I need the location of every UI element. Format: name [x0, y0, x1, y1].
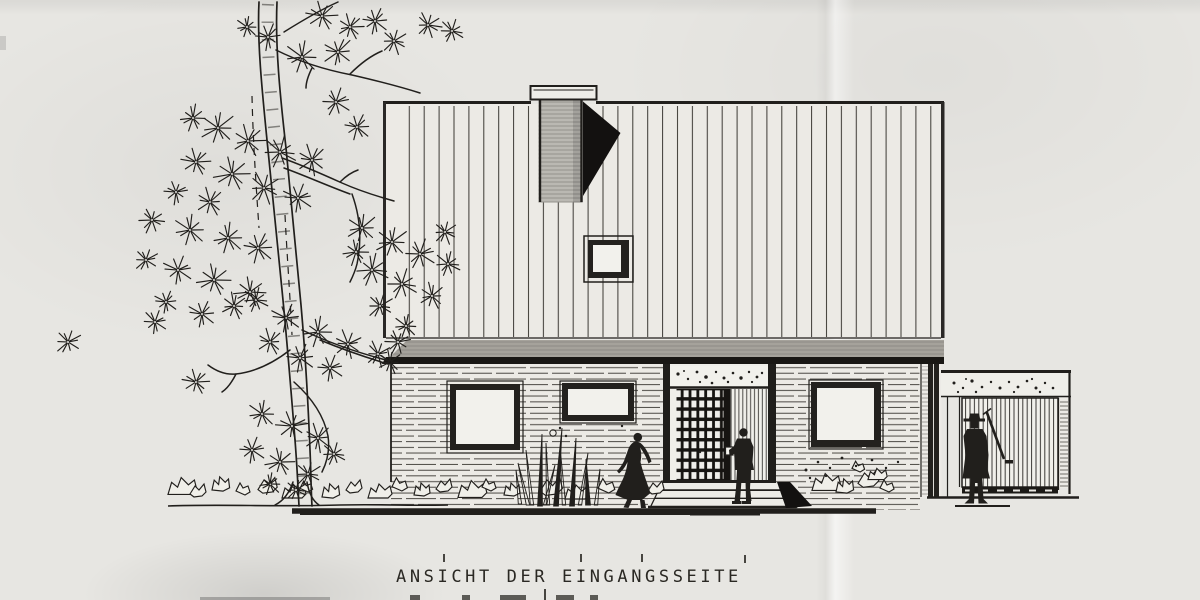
needle-cluster: [199, 187, 221, 215]
speckle-dot: [817, 461, 820, 464]
needle-cluster: [137, 250, 158, 269]
fascia-texture: [390, 340, 944, 357]
scanned-drawing-sheet: ANSICHT DER EINGANGSSEITE: [0, 0, 1200, 600]
house: [382, 86, 945, 510]
window-middle: [560, 381, 636, 423]
needle-cluster: [259, 328, 279, 354]
speckle-dot: [855, 465, 857, 467]
lettering-guide-tick: [641, 554, 643, 562]
needle-cluster: [287, 344, 313, 372]
speckle-dot: [1039, 391, 1041, 393]
speckle-dot: [696, 371, 699, 374]
needle-cluster: [265, 448, 295, 474]
caption-fragment: [556, 595, 574, 600]
needle-cluster: [343, 240, 369, 265]
speckle-dot: [805, 469, 808, 472]
elevation-drawing: [0, 0, 1200, 600]
garage-man-coat: [963, 429, 991, 479]
entry-divider: [724, 389, 731, 481]
needle-cluster: [182, 369, 210, 393]
speckle-dot: [699, 451, 701, 453]
window-right: [809, 380, 883, 449]
speckle-dot: [683, 370, 685, 372]
caption-fragment: [590, 595, 598, 600]
window-left-glass: [456, 390, 514, 444]
speckle-dot: [999, 387, 1002, 390]
speckle-dot: [1017, 386, 1020, 389]
speckle-dot: [621, 425, 623, 427]
lettering-guide-tick: [544, 589, 546, 600]
speckle-dot: [732, 372, 735, 375]
speckle-dot: [565, 435, 567, 437]
needle-cluster: [58, 331, 81, 352]
lettering-guide-tick: [580, 554, 582, 562]
caption-text: ANSICHT DER EINGANGSSEITE: [396, 567, 742, 587]
needle-cluster: [202, 113, 233, 142]
entry: [663, 364, 776, 483]
speckle-dot: [825, 475, 827, 477]
speckle-dot: [975, 391, 977, 393]
door-man-torso: [734, 439, 755, 471]
needle-cluster: [340, 14, 364, 39]
needle-cluster: [238, 17, 256, 37]
garage-right-pier-hatch: [1060, 399, 1068, 487]
garage-door-bottom-strip: [962, 487, 1058, 494]
woman-head: [634, 433, 643, 442]
roof-gable-siding: [383, 102, 945, 338]
needle-cluster: [363, 9, 387, 34]
speckle-dot: [715, 371, 717, 373]
scan-smudge: [0, 36, 6, 50]
speckle-dot: [1026, 380, 1029, 383]
needle-cluster: [298, 463, 320, 484]
entry-transom: [670, 366, 768, 386]
needle-cluster: [419, 13, 442, 38]
corner-hatch: [922, 366, 928, 496]
needle-cluster: [253, 172, 278, 204]
rock: [322, 484, 340, 498]
entry-right-jamb: [768, 364, 776, 483]
needle-cluster: [288, 41, 316, 72]
speckle-dot: [962, 387, 964, 389]
needle-cluster: [250, 401, 274, 427]
speckle-dot: [809, 477, 811, 479]
speckle-dot: [559, 427, 561, 429]
garage-door-handle: [1005, 460, 1013, 464]
needle-cluster: [155, 291, 176, 313]
needle-cluster: [164, 182, 187, 205]
needle-cluster: [348, 215, 374, 241]
speckle-dot: [1052, 387, 1055, 390]
speckle-dot: [1013, 391, 1015, 393]
garage-left-pier: [948, 397, 960, 497]
window-left: [447, 381, 523, 453]
door-man-feet: [732, 501, 751, 504]
needle-cluster: [213, 157, 250, 189]
speckle-dot: [704, 375, 708, 379]
entry-steps: [648, 482, 812, 508]
eaves-shadow-line: [382, 357, 944, 364]
speckle-dot: [1008, 381, 1010, 383]
needle-cluster: [235, 125, 266, 156]
speckle-dot: [1035, 387, 1038, 390]
garage-speckle-band: [941, 373, 1071, 396]
needle-cluster: [189, 302, 213, 327]
needle-cluster: [323, 88, 349, 115]
gable-window: [584, 236, 633, 282]
chimney-cap: [531, 86, 597, 100]
speckle-dot: [727, 381, 729, 383]
needle-cluster: [318, 355, 342, 381]
garage-man-head: [971, 422, 979, 429]
speckle-dot: [957, 391, 959, 393]
window-right-glass: [817, 388, 874, 440]
speckle-dot: [885, 467, 887, 469]
rock: [346, 480, 362, 493]
speckle-dot: [829, 467, 831, 469]
gable-window-glass: [593, 245, 621, 272]
needle-cluster: [197, 264, 232, 294]
needle-cluster: [144, 311, 165, 334]
needle-cluster: [164, 256, 191, 284]
needle-cluster: [284, 184, 311, 212]
needle-cluster: [234, 277, 266, 306]
speckle-dot: [990, 381, 992, 383]
lettering-guide-tick: [744, 555, 746, 563]
speckle-dot: [1031, 378, 1033, 380]
speckle-dot: [841, 457, 844, 460]
entry-left-jamb: [663, 364, 670, 483]
speckle-dot: [687, 378, 689, 380]
entry-grid-cells: [677, 389, 724, 481]
speckle-dot: [723, 377, 726, 380]
siding-lines: [397, 106, 937, 337]
needle-cluster: [345, 115, 369, 140]
rock: [236, 483, 250, 495]
tree-trunk: [259, 2, 312, 506]
garage: [927, 372, 1079, 507]
needle-cluster: [306, 1, 338, 29]
speckle-dot: [751, 381, 753, 383]
needle-cluster: [276, 412, 308, 441]
needle-cluster: [181, 148, 211, 174]
speckle-dot: [756, 376, 759, 379]
needle-cluster: [240, 437, 264, 463]
caption-fragment: [410, 595, 420, 600]
caption-fragment: [500, 595, 526, 600]
speckle-dot: [871, 459, 874, 462]
house-corner-pier: [920, 364, 942, 498]
speckle-dot: [1044, 382, 1046, 384]
speckle-dot: [739, 376, 742, 379]
needle-cluster: [181, 104, 206, 131]
needle-cluster: [176, 214, 204, 244]
speckle-dot: [711, 382, 714, 385]
needle-cluster: [214, 222, 242, 253]
speckle-dot: [897, 461, 899, 463]
rock: [212, 477, 230, 491]
speckle-dot: [748, 371, 750, 373]
needle-cluster: [304, 316, 332, 346]
needle-cluster: [139, 209, 165, 233]
speckle-dot: [761, 372, 763, 374]
lettering-guide-tick: [443, 554, 445, 562]
speckle-dot: [699, 381, 701, 383]
ground-blob: [690, 512, 760, 516]
speckle-dot: [981, 386, 984, 389]
eaves-fascia: [382, 340, 944, 364]
rock: [368, 484, 392, 498]
needle-cluster: [441, 20, 462, 42]
gable-right-edge: [941, 102, 945, 338]
door-man-head: [739, 428, 747, 436]
needle-cluster: [244, 234, 272, 263]
needle-cluster: [300, 144, 323, 175]
speckle-dot: [953, 382, 956, 385]
needle-cluster: [325, 40, 350, 65]
speckle-dot: [970, 379, 973, 382]
ground-line-left: [168, 505, 448, 506]
window-middle-glass: [568, 389, 628, 415]
speckle-dot: [676, 372, 679, 375]
needle-cluster: [384, 30, 405, 54]
caption-fragment: [462, 595, 470, 600]
speckle-dot: [965, 378, 967, 380]
